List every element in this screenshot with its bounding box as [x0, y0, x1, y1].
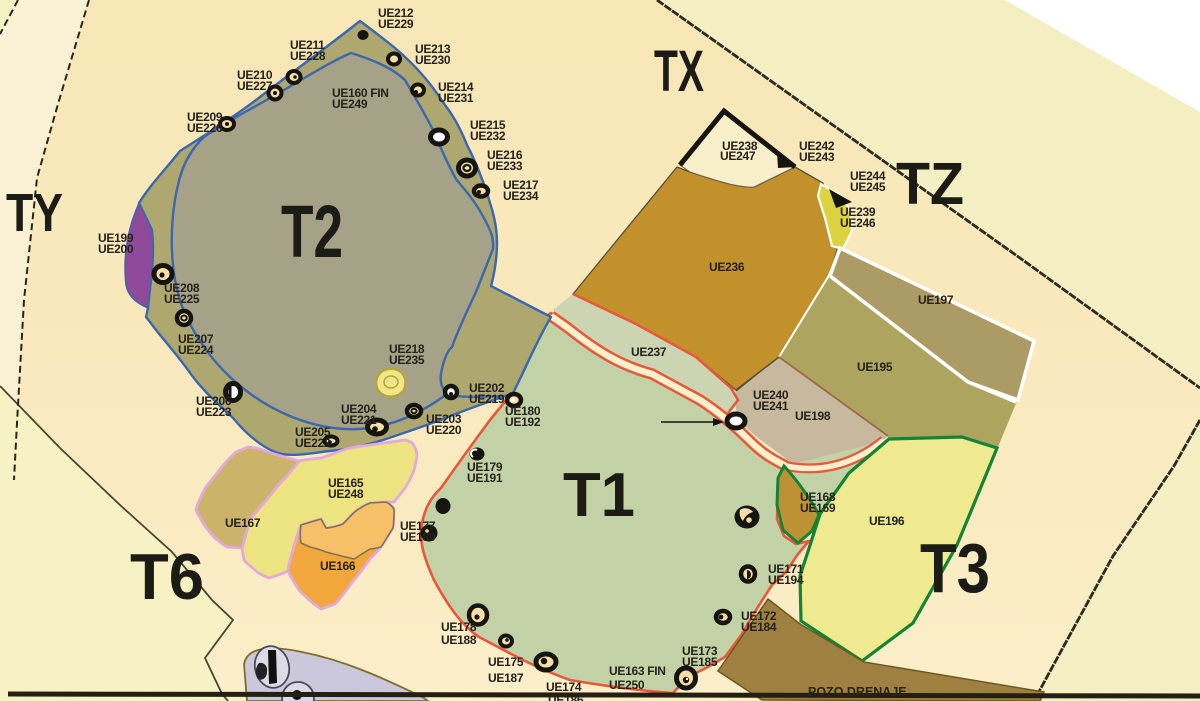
svg-text:UE232: UE232	[470, 129, 506, 143]
svg-text:UE174: UE174	[546, 680, 582, 694]
svg-text:UE241: UE241	[753, 399, 789, 413]
svg-text:UE224: UE224	[178, 343, 214, 357]
svg-text:UE197: UE197	[918, 293, 954, 307]
svg-text:UE225: UE225	[164, 292, 200, 306]
svg-text:UE191: UE191	[467, 471, 503, 485]
svg-text:UE231: UE231	[438, 91, 474, 105]
svg-text:UE200: UE200	[98, 242, 134, 256]
svg-text:T2: T2	[281, 190, 343, 273]
svg-text:UE196: UE196	[869, 514, 905, 528]
svg-text:UE243: UE243	[799, 150, 835, 164]
svg-text:POZO DRENAJE: POZO DRENAJE	[808, 685, 907, 699]
svg-text:UE192: UE192	[505, 415, 541, 429]
svg-text:UE163 FIN: UE163 FIN	[609, 664, 666, 678]
svg-text:UE247: UE247	[720, 149, 756, 163]
svg-text:T3: T3	[920, 529, 990, 607]
svg-text:UE169: UE169	[800, 501, 836, 515]
svg-text:UE187: UE187	[488, 671, 524, 685]
svg-text:UE221: UE221	[341, 413, 377, 427]
svg-text:UE167: UE167	[225, 516, 261, 530]
svg-text:UE222: UE222	[295, 436, 331, 450]
svg-text:UE246: UE246	[840, 216, 876, 230]
svg-text:UE219: UE219	[469, 392, 505, 406]
svg-text:UE175: UE175	[488, 655, 524, 669]
svg-text:UE184: UE184	[741, 620, 777, 634]
svg-text:UE185: UE185	[682, 655, 718, 669]
svg-text:UE227: UE227	[237, 79, 273, 93]
svg-text:UE226: UE226	[187, 121, 223, 135]
svg-text:UE245: UE245	[850, 180, 886, 194]
svg-text:UE188: UE188	[441, 633, 477, 647]
svg-text:UE223: UE223	[196, 405, 232, 419]
svg-text:UE178: UE178	[441, 620, 477, 634]
svg-text:UE194: UE194	[768, 573, 804, 587]
svg-text:TZ: TZ	[896, 151, 964, 217]
svg-text:UE195: UE195	[857, 360, 893, 374]
svg-text:UE198: UE198	[795, 409, 831, 423]
svg-text:UE250: UE250	[609, 678, 645, 692]
svg-text:UE229: UE229	[378, 17, 414, 31]
svg-text:UE235: UE235	[389, 353, 425, 367]
svg-text:TX: TX	[654, 39, 704, 104]
svg-text:TY: TY	[6, 183, 63, 243]
svg-text:UE233: UE233	[487, 159, 523, 173]
svg-text:UE230: UE230	[415, 53, 451, 67]
svg-text:UE228: UE228	[290, 49, 326, 63]
svg-text:UE166: UE166	[320, 559, 356, 573]
svg-text:UE220: UE220	[426, 423, 462, 437]
svg-text:T1: T1	[563, 461, 635, 530]
svg-text:UE236: UE236	[709, 260, 745, 274]
svg-text:UE248: UE248	[328, 487, 364, 501]
svg-text:UE186: UE186	[548, 693, 584, 701]
svg-text:T6: T6	[130, 540, 204, 613]
svg-text:UE237: UE237	[631, 345, 667, 359]
svg-text:UE234: UE234	[503, 189, 539, 203]
svg-text:UE189: UE189	[400, 530, 436, 544]
svg-text:UE249: UE249	[332, 97, 368, 111]
